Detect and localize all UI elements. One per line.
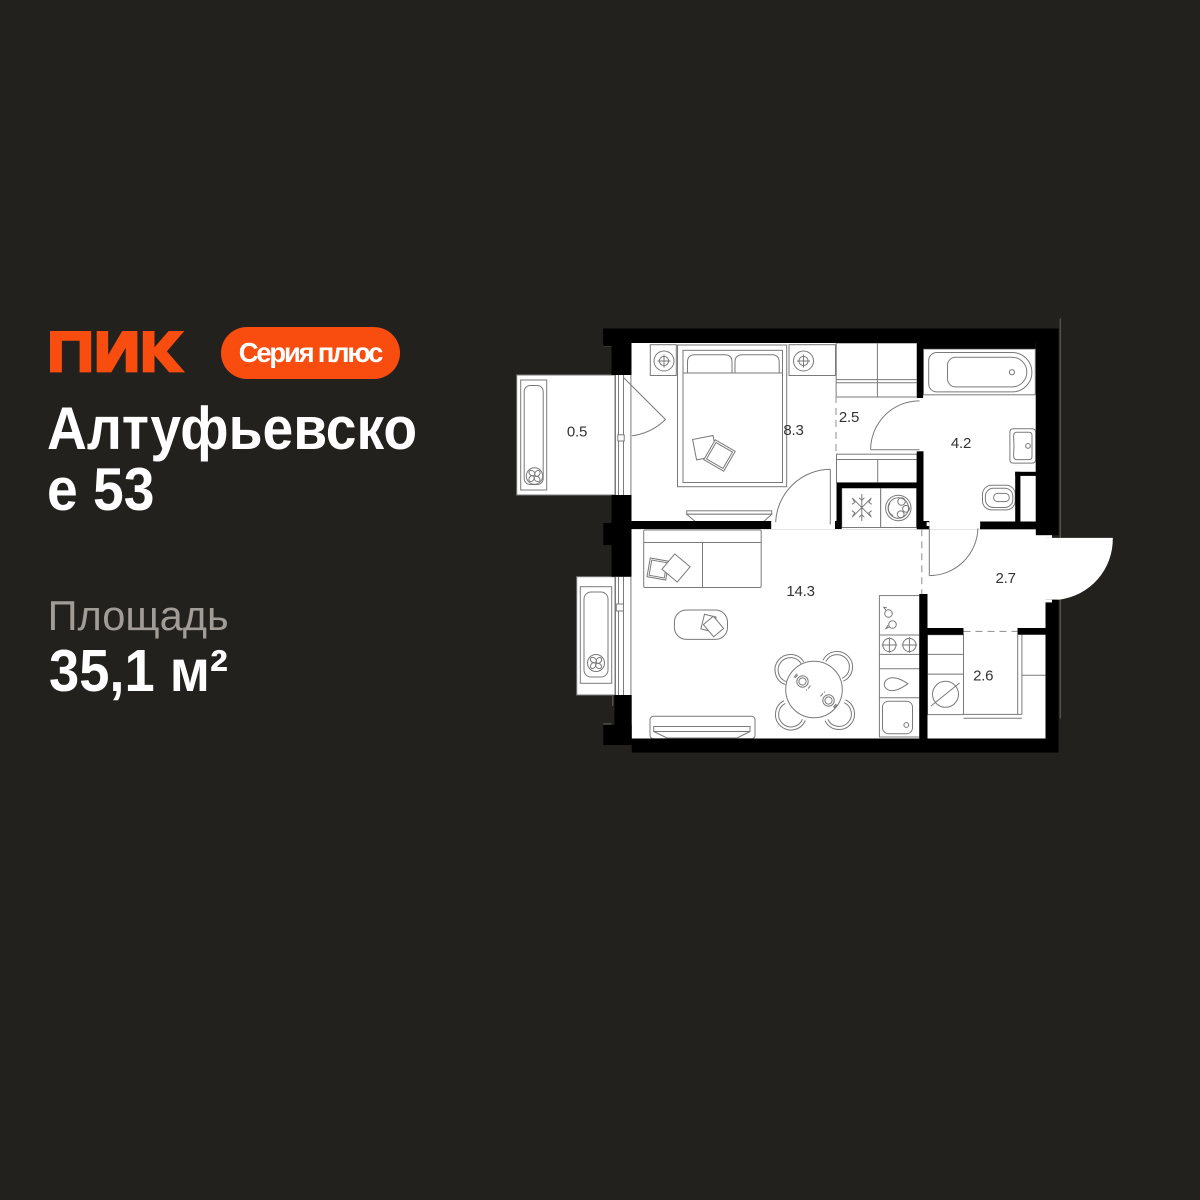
- svg-text:2.7: 2.7: [995, 570, 1015, 587]
- svg-text:2.5: 2.5: [839, 409, 859, 426]
- svg-text:14.3: 14.3: [786, 583, 814, 600]
- svg-text:2.6: 2.6: [973, 667, 993, 684]
- svg-text:8.3: 8.3: [783, 422, 803, 439]
- svg-text:0.5: 0.5: [567, 424, 587, 441]
- svg-text:4.2: 4.2: [951, 435, 971, 452]
